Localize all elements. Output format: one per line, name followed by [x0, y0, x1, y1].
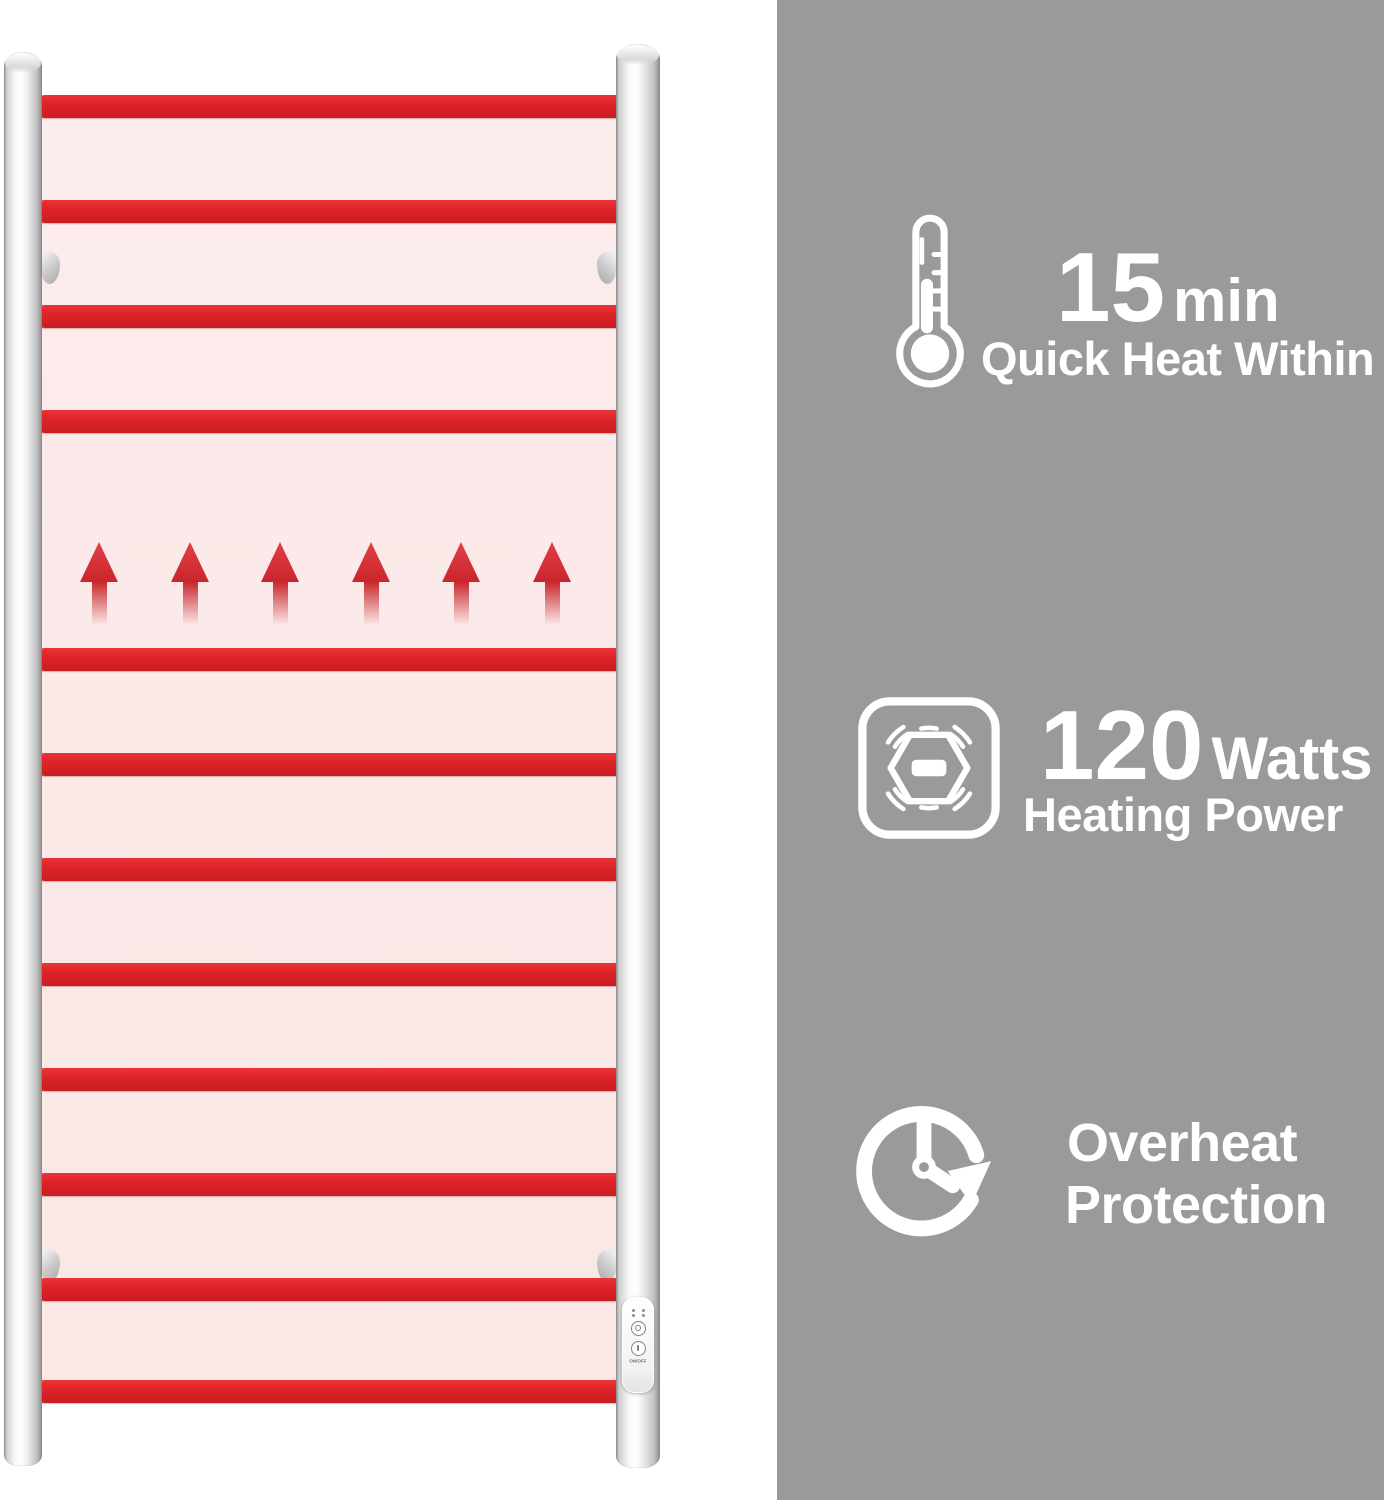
heat-arrow-icon — [171, 542, 209, 628]
heated-bar — [34, 1068, 628, 1091]
arrow-head — [533, 542, 571, 582]
power-icon — [637, 1345, 639, 1351]
heat-arrow-icon — [352, 542, 390, 628]
heated-bar — [34, 95, 628, 118]
quick-heat-number: 15 — [1056, 238, 1165, 336]
heated-bar — [34, 753, 628, 776]
arrow-head — [352, 542, 390, 582]
heated-bar — [34, 648, 628, 671]
heated-bar — [34, 1380, 628, 1403]
arrow-head — [442, 542, 480, 582]
heat-arrow-icon — [442, 542, 480, 628]
heat-glow-panel — [42, 106, 620, 1394]
power-button — [631, 1341, 646, 1356]
heat-arrow-icon — [261, 542, 299, 628]
timer-icon — [635, 1325, 641, 1331]
arrow-head — [171, 542, 209, 582]
feature-heating-power-value: 120Watts — [1040, 696, 1373, 794]
arrow-stem — [545, 582, 560, 628]
arrow-stem — [273, 582, 288, 628]
arrow-head — [80, 542, 118, 582]
arrow-stem — [183, 582, 198, 628]
feature-heating-power-caption: Heating Power — [1023, 789, 1343, 842]
left-rail — [4, 52, 42, 1466]
arrow-stem — [364, 582, 379, 628]
heating-element-icon — [856, 690, 1002, 846]
indicator-lights — [632, 1309, 645, 1312]
heating-power-number: 120 — [1040, 696, 1204, 794]
feature-overheat-caption-line1: Overheat — [1067, 1112, 1297, 1175]
heat-arrow-icon — [533, 542, 571, 628]
control-panel: ON/OFF — [622, 1297, 654, 1393]
right-rail — [616, 44, 660, 1468]
wall-bracket — [597, 252, 616, 284]
arrow-stem — [454, 582, 469, 628]
arrow-stem — [92, 582, 107, 628]
timer-button — [631, 1321, 646, 1336]
heat-arrow-icon — [80, 542, 118, 628]
feature-overheat-caption-line2: Protection — [1065, 1174, 1327, 1237]
arrow-head — [261, 542, 299, 582]
heated-bar — [34, 963, 628, 986]
feature-quick-heat-value: 15min — [1056, 238, 1280, 336]
heating-power-unit: Watts — [1212, 729, 1373, 789]
heated-bar — [34, 1278, 628, 1301]
thermometer-icon — [890, 206, 970, 394]
quick-heat-unit: min — [1173, 271, 1280, 331]
timer-clock-icon — [843, 1088, 1005, 1246]
heated-bar — [34, 858, 628, 881]
product-infographic: ON/OFF 15min Quick Heat Within 120Watts … — [0, 0, 1384, 1500]
onoff-label: ON/OFF — [629, 1359, 646, 1364]
heated-bar — [34, 305, 628, 328]
feature-quick-heat-caption: Quick Heat Within — [981, 333, 1374, 386]
heated-bar — [34, 410, 628, 433]
heated-bar — [34, 1173, 628, 1196]
heated-bar — [34, 200, 628, 223]
